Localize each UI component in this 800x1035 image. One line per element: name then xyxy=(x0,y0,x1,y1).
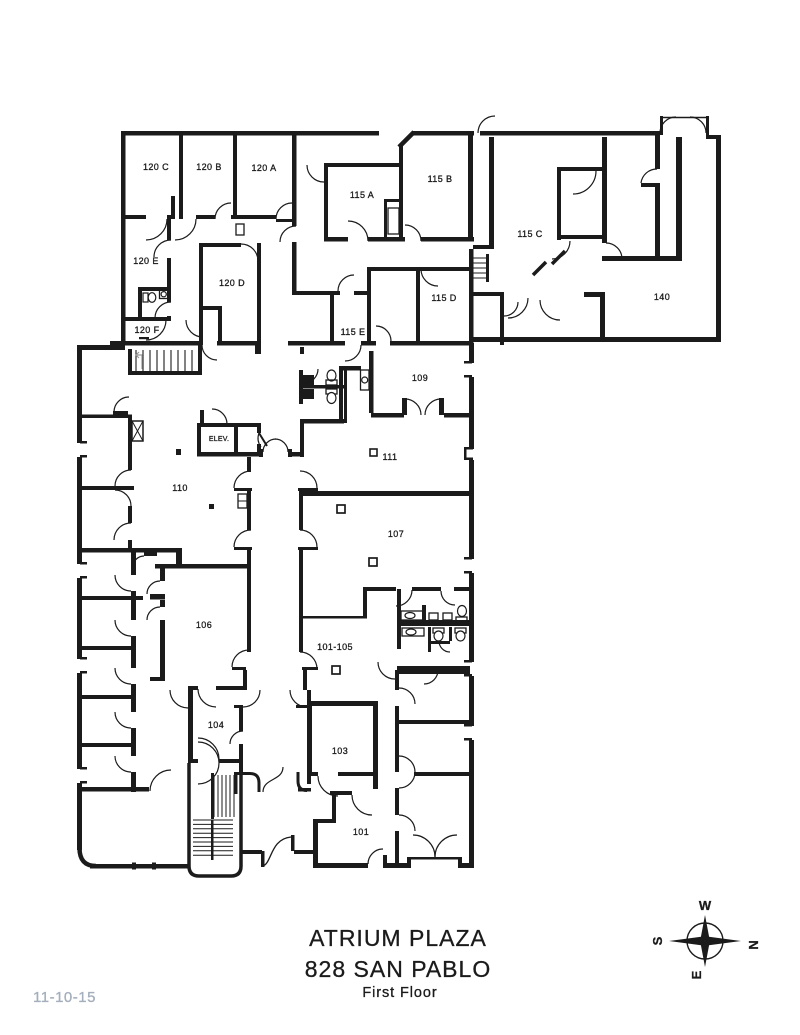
svg-text:First Floor: First Floor xyxy=(362,985,437,1001)
svg-text:120 C: 120 C xyxy=(143,162,169,172)
svg-text:101-105: 101-105 xyxy=(317,642,353,652)
svg-text:110: 110 xyxy=(172,483,188,493)
svg-text:103: 103 xyxy=(332,746,348,756)
svg-text:115 D: 115 D xyxy=(431,293,456,303)
svg-text:120 D: 120 D xyxy=(219,278,245,288)
svg-text:N: N xyxy=(746,940,761,949)
svg-text:S: S xyxy=(650,936,665,945)
svg-text:120 F: 120 F xyxy=(134,325,159,335)
svg-text:ELEV.: ELEV. xyxy=(209,436,229,443)
svg-text:140: 140 xyxy=(654,292,670,302)
svg-text:ATRIUM PLAZA: ATRIUM PLAZA xyxy=(309,925,487,951)
svg-text:101: 101 xyxy=(353,827,369,837)
svg-text:115 E: 115 E xyxy=(341,327,366,337)
svg-text:W: W xyxy=(699,898,712,913)
svg-text:E: E xyxy=(689,970,704,979)
svg-text:104: 104 xyxy=(208,720,224,730)
svg-text:120 A: 120 A xyxy=(251,163,276,173)
svg-text:115 C: 115 C xyxy=(517,229,542,239)
svg-text:109: 109 xyxy=(412,373,428,383)
svg-text:111: 111 xyxy=(383,452,398,462)
svg-text:107: 107 xyxy=(388,529,404,539)
svg-text:120 E: 120 E xyxy=(133,256,159,266)
svg-text:115 B: 115 B xyxy=(428,174,453,184)
svg-text:106: 106 xyxy=(196,620,212,630)
svg-text:115 A: 115 A xyxy=(350,190,374,200)
svg-text:11-10-15: 11-10-15 xyxy=(33,989,96,1006)
svg-text:120 B: 120 B xyxy=(196,162,222,172)
svg-text:828 SAN PABLO: 828 SAN PABLO xyxy=(305,956,491,982)
